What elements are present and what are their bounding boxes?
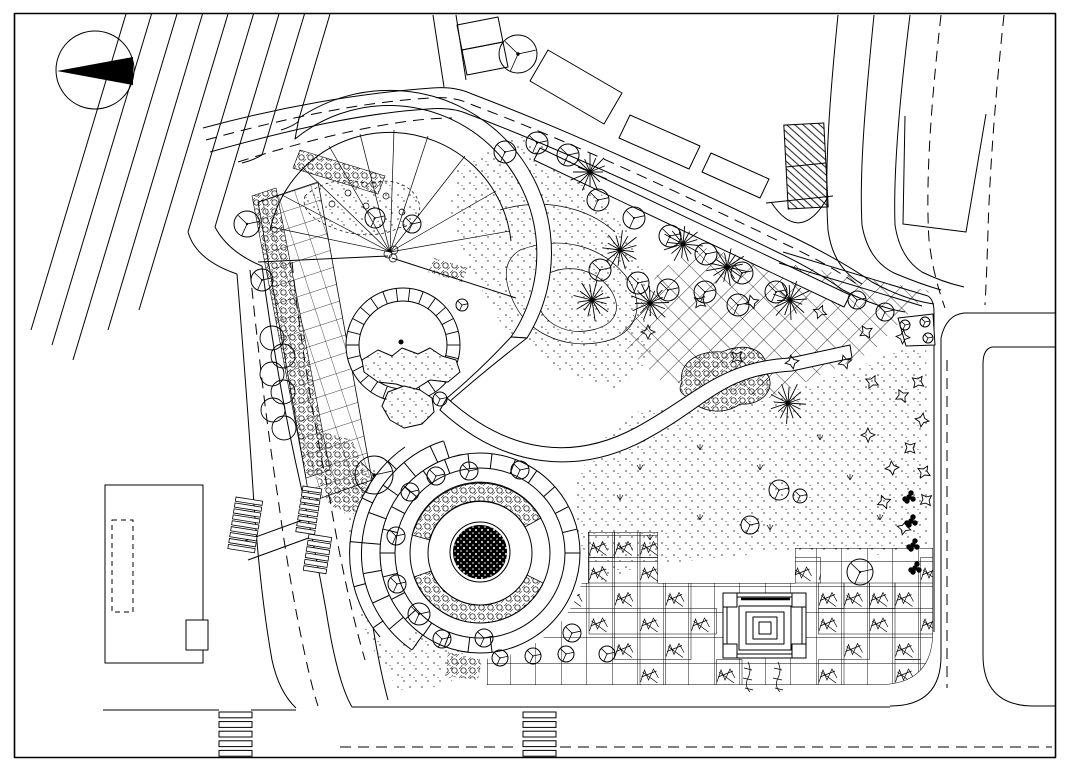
- deciduous-tree-icon: [657, 279, 679, 301]
- deciduous-tree-icon: [475, 629, 493, 647]
- deciduous-tree-icon: [387, 527, 405, 545]
- deciduous-tree-icon: [355, 456, 393, 494]
- planting-cell: [895, 634, 921, 660]
- deciduous-tree-icon: [494, 141, 516, 163]
- deciduous-tree-icon: [923, 333, 933, 343]
- crosswalk-bar: [523, 731, 556, 737]
- planting-cell: [921, 558, 947, 584]
- planting-cell: [819, 660, 845, 686]
- deciduous-tree-icon: [900, 320, 910, 330]
- deciduous-tree-icon: [920, 317, 930, 327]
- planting-cell: [819, 609, 845, 635]
- left-building: [105, 485, 208, 663]
- deciduous-tree-icon: [695, 243, 717, 265]
- deciduous-tree-icon: [563, 624, 581, 642]
- stair-flight: [303, 534, 331, 574]
- hedge-circle-icon: [261, 398, 285, 422]
- deciduous-tree-icon: [433, 392, 447, 406]
- deciduous-tree-icon: [558, 646, 574, 662]
- deciduous-tree-icon: [769, 480, 789, 500]
- deciduous-tree-icon: [499, 35, 537, 73]
- hedge-strip-ne: [428, 258, 468, 282]
- deciduous-tree-icon: [460, 462, 478, 480]
- deciduous-tree-icon: [589, 259, 611, 281]
- deciduous-tree-icon: [599, 646, 615, 662]
- crosswalk-bar: [219, 712, 252, 718]
- planting-cell: [870, 609, 896, 635]
- crosswalk-bar: [523, 741, 556, 747]
- deciduous-tree-icon: [388, 575, 406, 593]
- planting-cell: [640, 660, 666, 686]
- deciduous-tree-icon: [741, 516, 759, 534]
- flower-patch: [446, 652, 482, 680]
- planting-cell: [819, 583, 845, 609]
- planting-cell: [615, 583, 641, 609]
- deciduous-tree-icon: [234, 211, 260, 237]
- deciduous-tree-icon: [427, 467, 445, 485]
- crosswalk-bar: [219, 731, 252, 737]
- planting-cell: [615, 532, 641, 558]
- planting-cell: [895, 660, 921, 686]
- planting-cell: [844, 634, 870, 660]
- north-arrow: [56, 31, 134, 109]
- crosswalks: [219, 712, 556, 756]
- crosswalk-bar: [523, 722, 556, 728]
- pond-center-jet: [399, 340, 404, 345]
- deciduous-tree-icon: [433, 630, 451, 648]
- deciduous-tree-icon: [623, 207, 645, 229]
- deciduous-tree-icon: [365, 208, 385, 228]
- planting-cell: [666, 583, 692, 609]
- planting-cell: [895, 583, 921, 609]
- deciduous-tree-icon: [403, 215, 421, 233]
- crosswalk-bar: [523, 750, 556, 756]
- crosswalk-bar: [219, 722, 252, 728]
- deciduous-tree-icon: [793, 489, 807, 503]
- deciduous-tree-icon: [526, 132, 548, 154]
- planting-cell: [615, 634, 641, 660]
- deciduous-tree-icon: [694, 281, 716, 303]
- cad-plan-screenshot: [0, 0, 1075, 778]
- deciduous-tree-icon: [848, 291, 866, 309]
- deciduous-tree-icon: [511, 461, 529, 479]
- planting-cell: [589, 532, 615, 558]
- planting-cell: [666, 634, 692, 660]
- hedge-circle-icon: [260, 362, 284, 386]
- deciduous-tree-icon: [557, 144, 579, 166]
- hatched-building: [784, 123, 828, 209]
- planting-cell: [844, 583, 870, 609]
- planting-cell: [640, 558, 666, 584]
- crosswalk-bar: [219, 741, 252, 747]
- deciduous-tree-icon: [587, 189, 609, 211]
- right-building: [903, 114, 986, 232]
- planting-cell: [717, 660, 743, 686]
- site-plan-drawing: [0, 0, 1075, 778]
- planting-cell: [589, 609, 615, 635]
- deciduous-tree-icon: [847, 559, 873, 585]
- deciduous-tree-icon: [456, 299, 468, 311]
- planting-cell: [921, 609, 947, 635]
- ring-joint: [444, 441, 450, 458]
- deciduous-tree-icon: [525, 648, 541, 664]
- deciduous-tree-icon: [492, 650, 508, 666]
- deciduous-tree-icon: [876, 303, 894, 321]
- crosswalk-bar: [523, 712, 556, 718]
- planting-cell: [640, 609, 666, 635]
- deciduous-tree-icon: [727, 294, 749, 316]
- east-road: [941, 313, 1056, 688]
- north-arrow-triangle: [57, 57, 133, 85]
- planting-cell: [795, 558, 821, 584]
- planting-cell: [870, 583, 896, 609]
- deciduous-tree-icon: [408, 603, 430, 625]
- planting-cell: [589, 558, 615, 584]
- deciduous-tree-icon: [401, 483, 419, 501]
- hedge-circle-icon: [272, 416, 296, 440]
- deciduous-tree-icon: [765, 281, 787, 303]
- crosswalk-bar: [219, 750, 252, 756]
- northeast-road: [827, 15, 1004, 308]
- deciduous-tree-icon: [251, 269, 273, 291]
- deciduous-tree-icon: [627, 272, 649, 294]
- planting-cell: [691, 609, 717, 635]
